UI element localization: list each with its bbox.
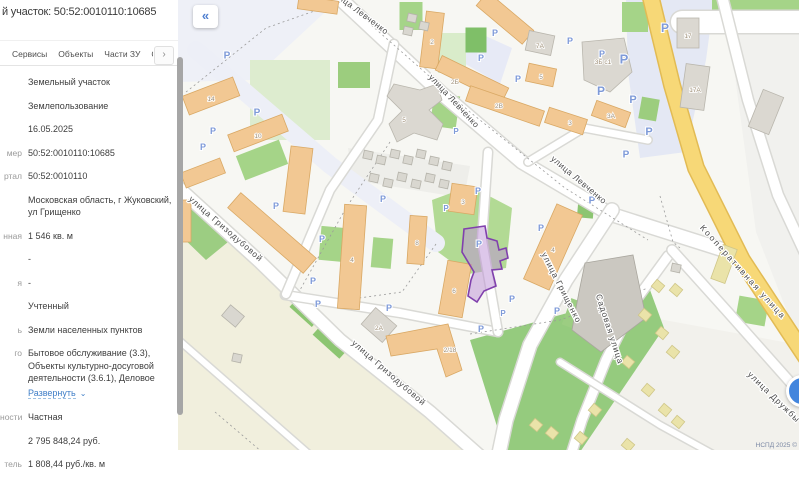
attribute-row: 2 795 848,24 руб. [0, 435, 178, 448]
attribute-row: ностиЧастная [0, 411, 178, 424]
green-area [638, 97, 660, 122]
attribute-value: 1 546 кв. м [28, 230, 172, 243]
expand-link[interactable]: Развернуть [28, 388, 76, 399]
attribute-row: гоБытовое обслуживание (3.3), Объекты ку… [0, 347, 178, 400]
attribute-row: Учтенный [0, 300, 178, 313]
basemap-svg[interactable]: PPPPPPPPPPPPPPPPPPPPPPPPPPPPPPP141048632… [178, 0, 799, 450]
attribute-label [0, 123, 28, 136]
parking-icon: P [478, 324, 484, 334]
garage [390, 149, 400, 159]
tab-состав[interactable]: Состав [151, 49, 153, 59]
parking-icon: P [475, 186, 481, 196]
attribute-value: 16.05.2025 [28, 123, 172, 136]
building-label: 2Б [451, 79, 459, 86]
parking-icon: P [515, 74, 521, 84]
divider [0, 65, 178, 66]
building-label: 8 [415, 240, 419, 247]
building-label: 5 [539, 74, 543, 81]
map-attribution: НСПД 2025 © [756, 442, 797, 449]
attribute-value: Учтенный [28, 300, 172, 313]
garage [671, 263, 681, 273]
building-label: 5 [402, 117, 406, 124]
parking-icon: P [554, 306, 560, 316]
parking-icon: P [476, 239, 482, 249]
building-label: 3 [461, 199, 465, 206]
parking-icon: P [273, 201, 279, 211]
garage [425, 173, 435, 183]
building-label: 2 [430, 39, 434, 46]
parking-icon: P [210, 126, 216, 136]
parking-icon: P [453, 127, 459, 136]
chevron-down-icon: ⌄ [80, 389, 87, 398]
parking-icon: P [492, 28, 498, 38]
parking-icon: P [599, 49, 605, 59]
attribute-label: го [0, 347, 28, 400]
building-label: 3 [568, 120, 572, 127]
attribute-value: 50:52:0010110 [28, 170, 172, 183]
attribute-value: 1 808,44 руб./кв. м [28, 458, 172, 471]
garage [419, 21, 429, 31]
parking-icon: P [661, 21, 669, 35]
building-label: 6 [452, 288, 456, 295]
parking-icon: P [310, 276, 316, 286]
parking-icon: P [315, 299, 321, 309]
parking-icon: P [645, 126, 652, 138]
parking-icon: P [629, 94, 636, 106]
attribute-row: я- [0, 277, 178, 290]
tabs: СервисыОбъектыЧасти ЗУСостав [12, 49, 153, 59]
parking-icon: P [478, 53, 484, 63]
tabs-scroll-button[interactable]: › [154, 46, 174, 65]
parking-icon: P [443, 204, 449, 213]
building-label: 2А [375, 325, 384, 332]
parking-icon: P [380, 194, 386, 204]
attribute-value: Землепользование [28, 100, 172, 113]
collapse-panel-button[interactable]: « [193, 5, 218, 28]
parking-icon: P [538, 223, 544, 233]
building-label: 14 [207, 96, 215, 103]
info-panel: й участок: 50:52:0010110:10685 СервисыОб… [0, 0, 178, 450]
attribute-label [0, 100, 28, 113]
garage [369, 173, 379, 183]
parking-icon: P [500, 309, 506, 318]
green-area [338, 62, 370, 88]
garage [397, 172, 407, 182]
green-area [371, 237, 394, 269]
attribute-value: Московская область, г Жуковский, ул Грищ… [28, 194, 172, 219]
attribute-row: - [0, 253, 178, 266]
garage [429, 156, 439, 166]
attribute-value: Земли населенных пунктов [28, 324, 172, 337]
parking-icon: P [319, 234, 325, 244]
parking-icon: P [224, 51, 231, 62]
attribute-label: нная [0, 230, 28, 243]
attribute-label [0, 300, 28, 313]
parking-icon: P [567, 36, 573, 46]
garage [363, 150, 373, 160]
building-label: 3Б с1 [595, 59, 612, 66]
parking-icon: P [597, 84, 605, 98]
parking-icon: P [623, 150, 630, 161]
attribute-value: - [28, 277, 172, 290]
garage [442, 161, 452, 171]
panel-scrollbar[interactable] [177, 57, 183, 415]
parking-icon: P [620, 52, 629, 67]
building-label: 17 [684, 33, 692, 40]
map-canvas[interactable]: PPPPPPPPPPPPPPPPPPPPPPPPPPPPPPP141048632… [178, 0, 799, 450]
parking-icon: P [254, 108, 261, 119]
attribute-value: Земельный участок [28, 76, 172, 89]
building-label: 3А [607, 113, 616, 120]
attribute-label: тель [0, 458, 28, 471]
building-label: 2/18 [444, 347, 457, 354]
parking-icon: P [200, 142, 206, 152]
attribute-value: 50:52:0010110:10685 [28, 147, 172, 160]
attribute-label: ртал [0, 170, 28, 183]
attribute-row: 16.05.2025 [0, 123, 178, 136]
attribute-rows: Земельный участокЗемлепользование16.05.2… [0, 76, 178, 482]
parking-icon: P [386, 303, 392, 313]
page-title: й участок: 50:52:0010110:10685 [2, 6, 156, 18]
garage [403, 26, 413, 36]
garage [376, 155, 386, 165]
attribute-value: - [28, 253, 172, 266]
attribute-label [0, 194, 28, 219]
garage [411, 179, 421, 189]
building-label: 4 [350, 257, 354, 264]
building-label: 7А [536, 43, 545, 50]
parking-icon: P [509, 294, 515, 304]
attribute-row: тель1 808,44 руб./кв. м [0, 458, 178, 471]
garage [407, 13, 417, 23]
attribute-label [0, 435, 28, 448]
attribute-label: я [0, 277, 28, 290]
attribute-row: Земельный участок [0, 76, 178, 89]
building-label: 4 [551, 247, 555, 254]
building-label: 2В [495, 103, 503, 110]
attribute-row: Московская область, г Жуковский, ул Грищ… [0, 194, 178, 219]
garage [383, 178, 393, 188]
tab-объекты[interactable]: Объекты [58, 49, 93, 59]
building-label: 10 [254, 133, 262, 140]
attribute-row: ьЗемли населенных пунктов [0, 324, 178, 337]
attribute-label: мер [0, 147, 28, 160]
tab-части-зу[interactable]: Части ЗУ [104, 49, 140, 59]
attribute-row: мер50:52:0010110:10685 [0, 147, 178, 160]
tab-сервисы[interactable]: Сервисы [12, 49, 47, 59]
attribute-value: Бытовое обслуживание (3.3), Объекты куль… [28, 347, 172, 400]
divider [0, 40, 178, 41]
green-area [466, 28, 487, 53]
attribute-label [0, 253, 28, 266]
attribute-label: ь [0, 324, 28, 337]
attribute-value: Частная [28, 411, 172, 424]
attribute-value: 2 795 848,24 руб. [28, 435, 172, 448]
garage [403, 155, 413, 165]
cadastral-app: { "header": { "title": "й участок: 50:52… [0, 0, 799, 450]
garage [232, 353, 242, 363]
attribute-row: Землепользование [0, 100, 178, 113]
attribute-label: ности [0, 411, 28, 424]
building-label: 17А [689, 87, 701, 94]
garage [416, 149, 426, 159]
attribute-row: нная1 546 кв. м [0, 230, 178, 243]
attribute-label [0, 76, 28, 89]
garage [439, 179, 449, 189]
attribute-row: ртал50:52:0010110 [0, 170, 178, 183]
